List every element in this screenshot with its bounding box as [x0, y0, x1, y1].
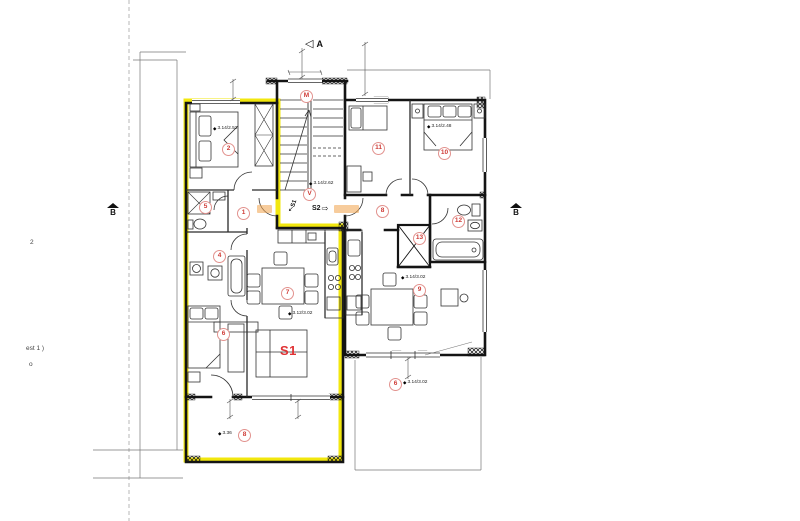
room-marker-s2-bedroom1: 10 — [438, 147, 451, 160]
room-marker-stair-lower: V — [303, 188, 316, 201]
level-value: 3.14/2.48 — [431, 124, 451, 130]
section-a-letter: A — [316, 38, 323, 50]
staircase — [280, 98, 343, 192]
room-marker-s1-hall: 1 — [237, 207, 250, 220]
margin-note-top: 2 — [30, 239, 34, 246]
unit-entry-label-s2: S2 ⇨ — [312, 205, 328, 213]
room-marker-s2-hall: 8 — [376, 205, 389, 218]
level-icon: ◆ — [401, 275, 404, 281]
floor-plan-canvas: ◁ A B B 2 est 1 ) o S1 S2 ⇨ S1 ↙ 1 2 4 5… — [0, 0, 800, 521]
level-value: 3.12/3.02 — [292, 311, 312, 317]
door-s2-room11 — [386, 179, 402, 195]
level-value: 3.14/2.52 — [217, 126, 237, 132]
door-s1-wc — [214, 196, 228, 210]
door-s2-bathroom — [432, 208, 448, 224]
room-marker-s1-wc: 5 — [199, 201, 212, 214]
door-s1-bathroom — [231, 234, 247, 250]
door-s1-terrace — [211, 375, 233, 397]
section-b-letter: B — [105, 208, 121, 217]
s2-entry-arrow-icon: ⇨ — [322, 205, 329, 213]
level-marker-stairs: ◆ 3.14/2.62 — [309, 181, 333, 187]
level-marker-s2-terrace: ◆ 3.14/3.02 — [403, 380, 427, 386]
room-marker-s2-living: 9 — [413, 284, 426, 297]
level-marker-s2-bedroom1: ◆ 3.14/2.48 — [427, 124, 451, 130]
floor-plan-drawing — [0, 0, 800, 521]
section-marker-b-right: B — [508, 203, 524, 217]
room-marker-s2-terrace: 6 — [389, 378, 402, 391]
room-marker-stair-upper: M — [300, 90, 313, 103]
level-icon: ◆ — [288, 311, 291, 317]
level-marker-s1-living: ◆ 3.12/3.02 — [288, 311, 312, 317]
level-icon: ◆ — [403, 380, 406, 386]
section-b-letter: B — [508, 208, 524, 217]
s2-entry-text: S2 — [312, 205, 321, 213]
furniture-s1 — [188, 104, 343, 382]
room-marker-s1-living: 7 — [281, 287, 294, 300]
margin-note-bottom: o — [29, 361, 33, 368]
door-s2-room10 — [412, 179, 428, 195]
room-marker-s1-bedroom1: 2 — [222, 143, 235, 156]
room-marker-s1-bedroom2: 6 — [217, 328, 230, 341]
door-s1-bedroom1 — [234, 172, 252, 190]
room-marker-s2-bathroom: 12 — [452, 215, 465, 228]
level-marker-s2-living: ◆ 3.14/3.02 — [401, 275, 425, 281]
room-marker-s1-bathroom: 4 — [213, 250, 226, 263]
section-a-arrow-icon: ◁ — [305, 38, 313, 50]
level-marker-s1-terrace: ◆ 3.36 — [218, 431, 232, 437]
level-icon: ◆ — [218, 431, 221, 437]
door-s1-bedroom2 — [231, 300, 247, 316]
level-icon: ◆ — [213, 126, 216, 132]
level-icon: ◆ — [427, 124, 430, 130]
unit-label-s1: S1 — [280, 344, 297, 357]
margin-note-middle: est 1 ) — [26, 345, 44, 352]
level-value: 3.14/3.02 — [405, 275, 425, 281]
section-marker-a: ◁ A — [305, 38, 323, 50]
room-marker-s2-wc: 13 — [413, 232, 426, 245]
room-marker-s2-bedroom2: 11 — [372, 142, 385, 155]
level-marker-s1-bedroom1: ◆ 3.14/2.52 — [213, 126, 237, 132]
orange-highlight-mark — [257, 205, 272, 213]
elevator-shaft — [398, 225, 430, 267]
room-marker-s1-terrace: 8 — [238, 429, 251, 442]
s1-entry-arrow-icon: ↙ — [288, 205, 294, 213]
level-value: 3.14/3.02 — [407, 380, 427, 386]
section-marker-b-left: B — [105, 203, 121, 217]
orange-highlight-mark — [334, 205, 359, 213]
level-value: 3.14/2.62 — [313, 181, 333, 187]
level-icon: ◆ — [309, 181, 312, 187]
level-value: 3.36 — [222, 431, 231, 437]
